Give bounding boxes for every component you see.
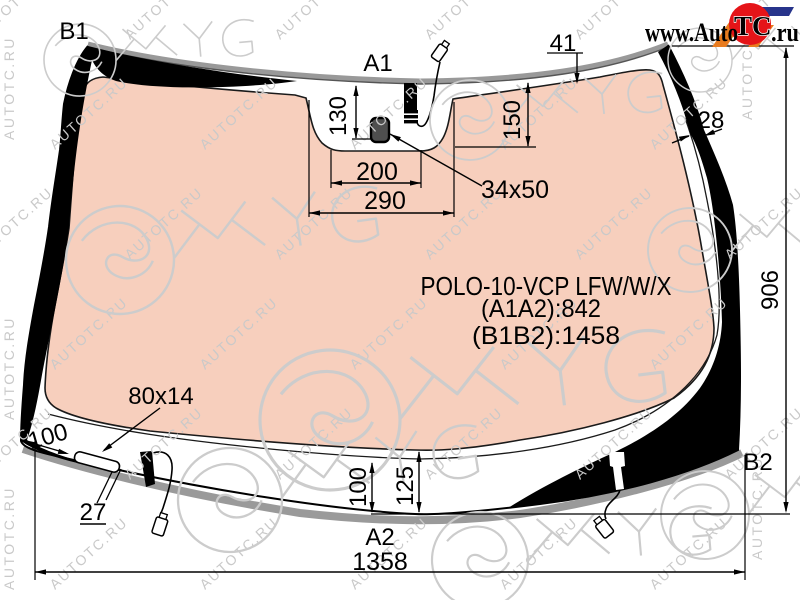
svg-text:AUTOTC.RU: AUTOTC.RU — [1, 36, 17, 140]
svg-text:150: 150 — [499, 100, 526, 140]
svg-text:www.Auto: www.Auto — [645, 18, 738, 47]
svg-text:27: 27 — [80, 499, 107, 526]
svg-text:100: 100 — [345, 467, 372, 507]
svg-text:.ru: .ru — [771, 18, 799, 47]
svg-text:(A1A2):842: (A1A2):842 — [481, 295, 601, 323]
svg-text:A2: A2 — [365, 524, 394, 551]
svg-text:B2: B2 — [743, 449, 772, 476]
svg-text:(B1B2):1458: (B1B2):1458 — [472, 322, 620, 350]
svg-text:TC: TC — [734, 11, 772, 41]
svg-text:AUTOTC.RU: AUTOTC.RU — [1, 316, 17, 420]
svg-text:80x14: 80x14 — [128, 383, 193, 410]
svg-text:A1: A1 — [363, 50, 392, 77]
svg-text:125: 125 — [392, 466, 419, 506]
svg-text:290: 290 — [364, 187, 406, 215]
svg-text:906: 906 — [757, 270, 784, 310]
svg-text:B1: B1 — [59, 18, 88, 45]
svg-text:130: 130 — [325, 96, 352, 136]
svg-text:AUTOTC.RU: AUTOTC.RU — [1, 486, 17, 590]
svg-text:34x50: 34x50 — [481, 176, 549, 204]
svg-text:200: 200 — [356, 158, 398, 186]
